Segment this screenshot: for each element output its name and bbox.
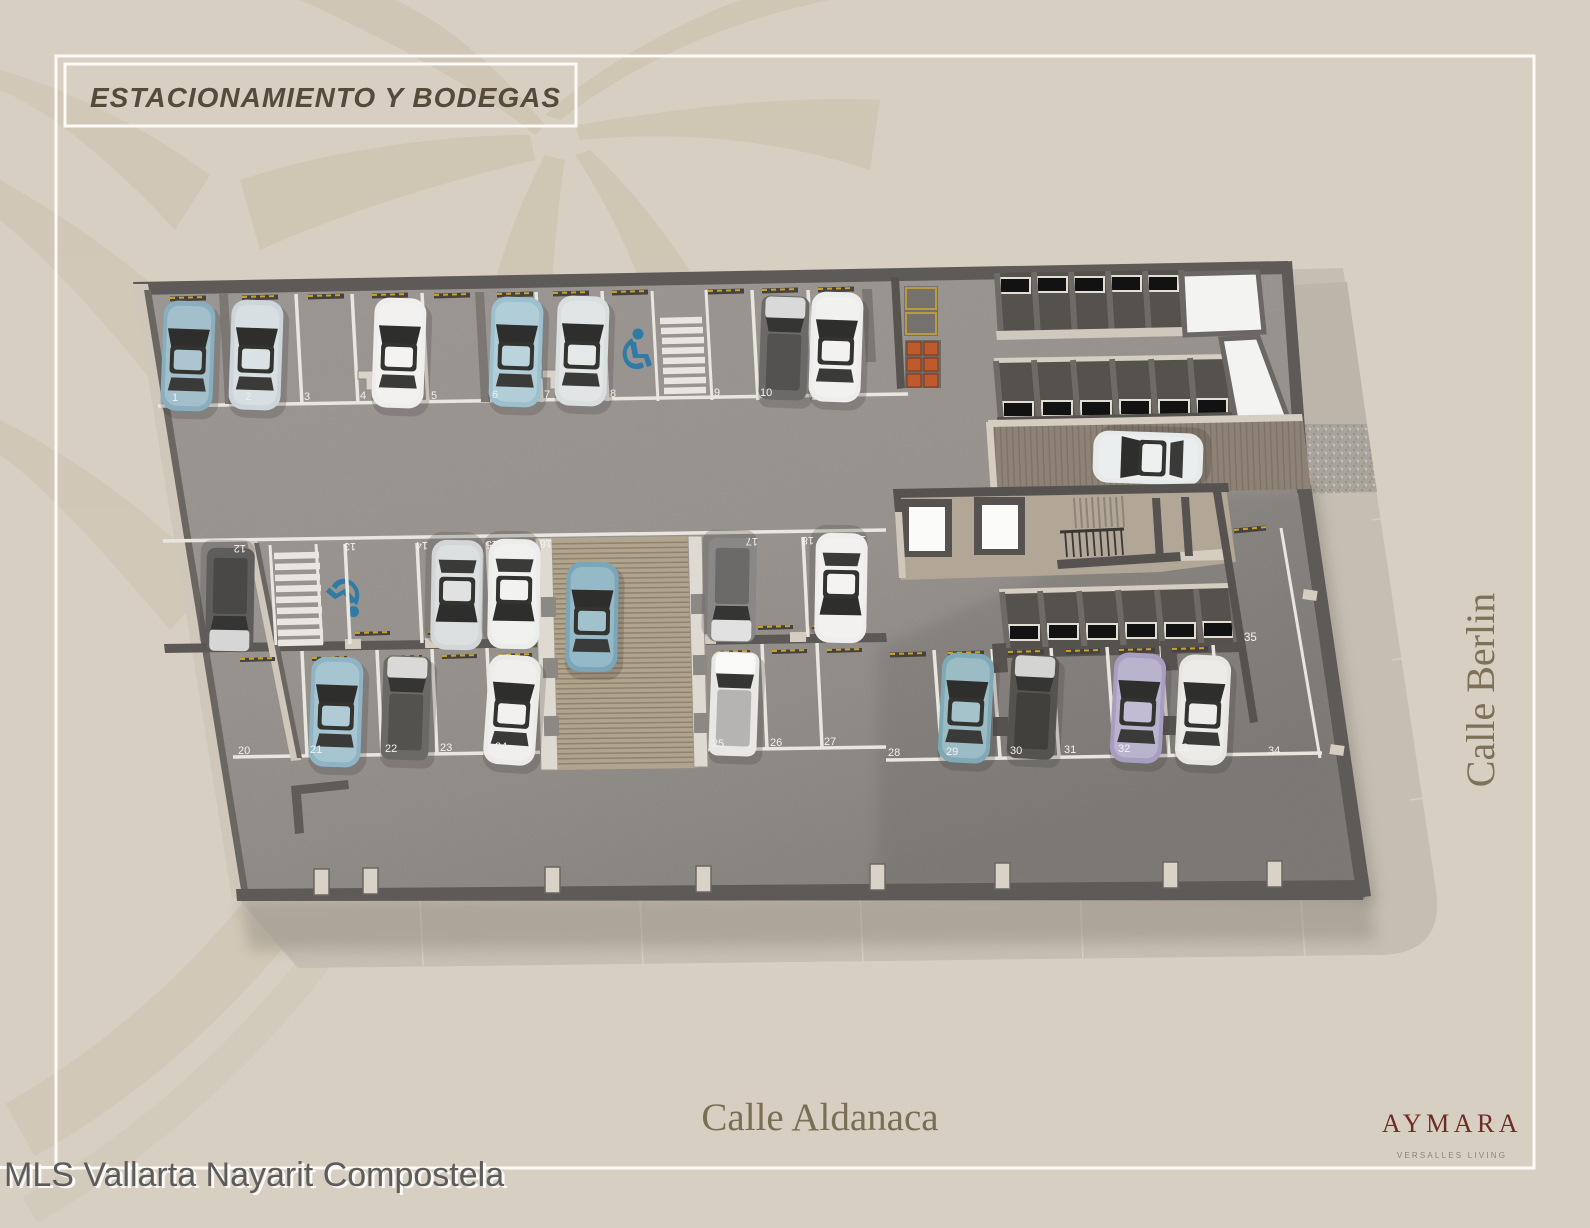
svg-text:VERSALLES LIVING: VERSALLES LIVING [1397, 1151, 1507, 1160]
svg-text:20: 20 [238, 745, 250, 757]
svg-text:34: 34 [1268, 745, 1280, 757]
svg-text:26: 26 [770, 737, 782, 749]
svg-text:9: 9 [714, 387, 720, 399]
svg-text:ESTACIONAMIENTO Y BODEGAS: ESTACIONAMIENTO Y BODEGAS [90, 82, 561, 113]
svg-text:18: 18 [802, 534, 814, 546]
svg-text:3: 3 [304, 391, 310, 403]
svg-text:6: 6 [492, 389, 498, 401]
svg-text:1: 1 [172, 392, 178, 404]
svg-text:31: 31 [1064, 744, 1076, 756]
svg-text:8: 8 [610, 388, 616, 400]
svg-text:12: 12 [234, 542, 246, 554]
svg-text:15: 15 [486, 538, 498, 550]
svg-text:24: 24 [495, 741, 507, 753]
svg-text:7: 7 [544, 389, 550, 401]
svg-text:2: 2 [245, 391, 251, 403]
svg-text:Calle Berlin: Calle Berlin [1458, 593, 1503, 787]
svg-text:16: 16 [540, 537, 552, 549]
svg-text:AYMARA: AYMARA [1382, 1109, 1522, 1138]
svg-text:35: 35 [1244, 632, 1257, 644]
svg-text:10: 10 [760, 387, 772, 399]
svg-text:32: 32 [1118, 743, 1130, 755]
svg-text:11: 11 [816, 386, 827, 398]
svg-text:4: 4 [360, 390, 366, 402]
svg-text:30: 30 [1010, 745, 1022, 757]
svg-text:27: 27 [824, 736, 836, 748]
svg-text:Calle Aldanaca: Calle Aldanaca [701, 1096, 938, 1139]
svg-text:17: 17 [746, 535, 758, 547]
svg-text:5: 5 [431, 390, 437, 402]
svg-text:19: 19 [854, 533, 866, 545]
svg-text:22: 22 [385, 743, 397, 755]
svg-text:29: 29 [946, 746, 958, 758]
svg-text:13: 13 [344, 540, 356, 552]
svg-text:14: 14 [416, 539, 428, 551]
svg-text:25: 25 [712, 738, 724, 750]
svg-text:23: 23 [440, 742, 452, 754]
svg-text:33: 33 [1176, 742, 1188, 754]
svg-text:MLS Vallarta Nayarit Compostel: MLS Vallarta Nayarit Compostela [4, 1156, 504, 1194]
svg-text:21: 21 [310, 744, 322, 756]
svg-text:28: 28 [888, 747, 900, 759]
